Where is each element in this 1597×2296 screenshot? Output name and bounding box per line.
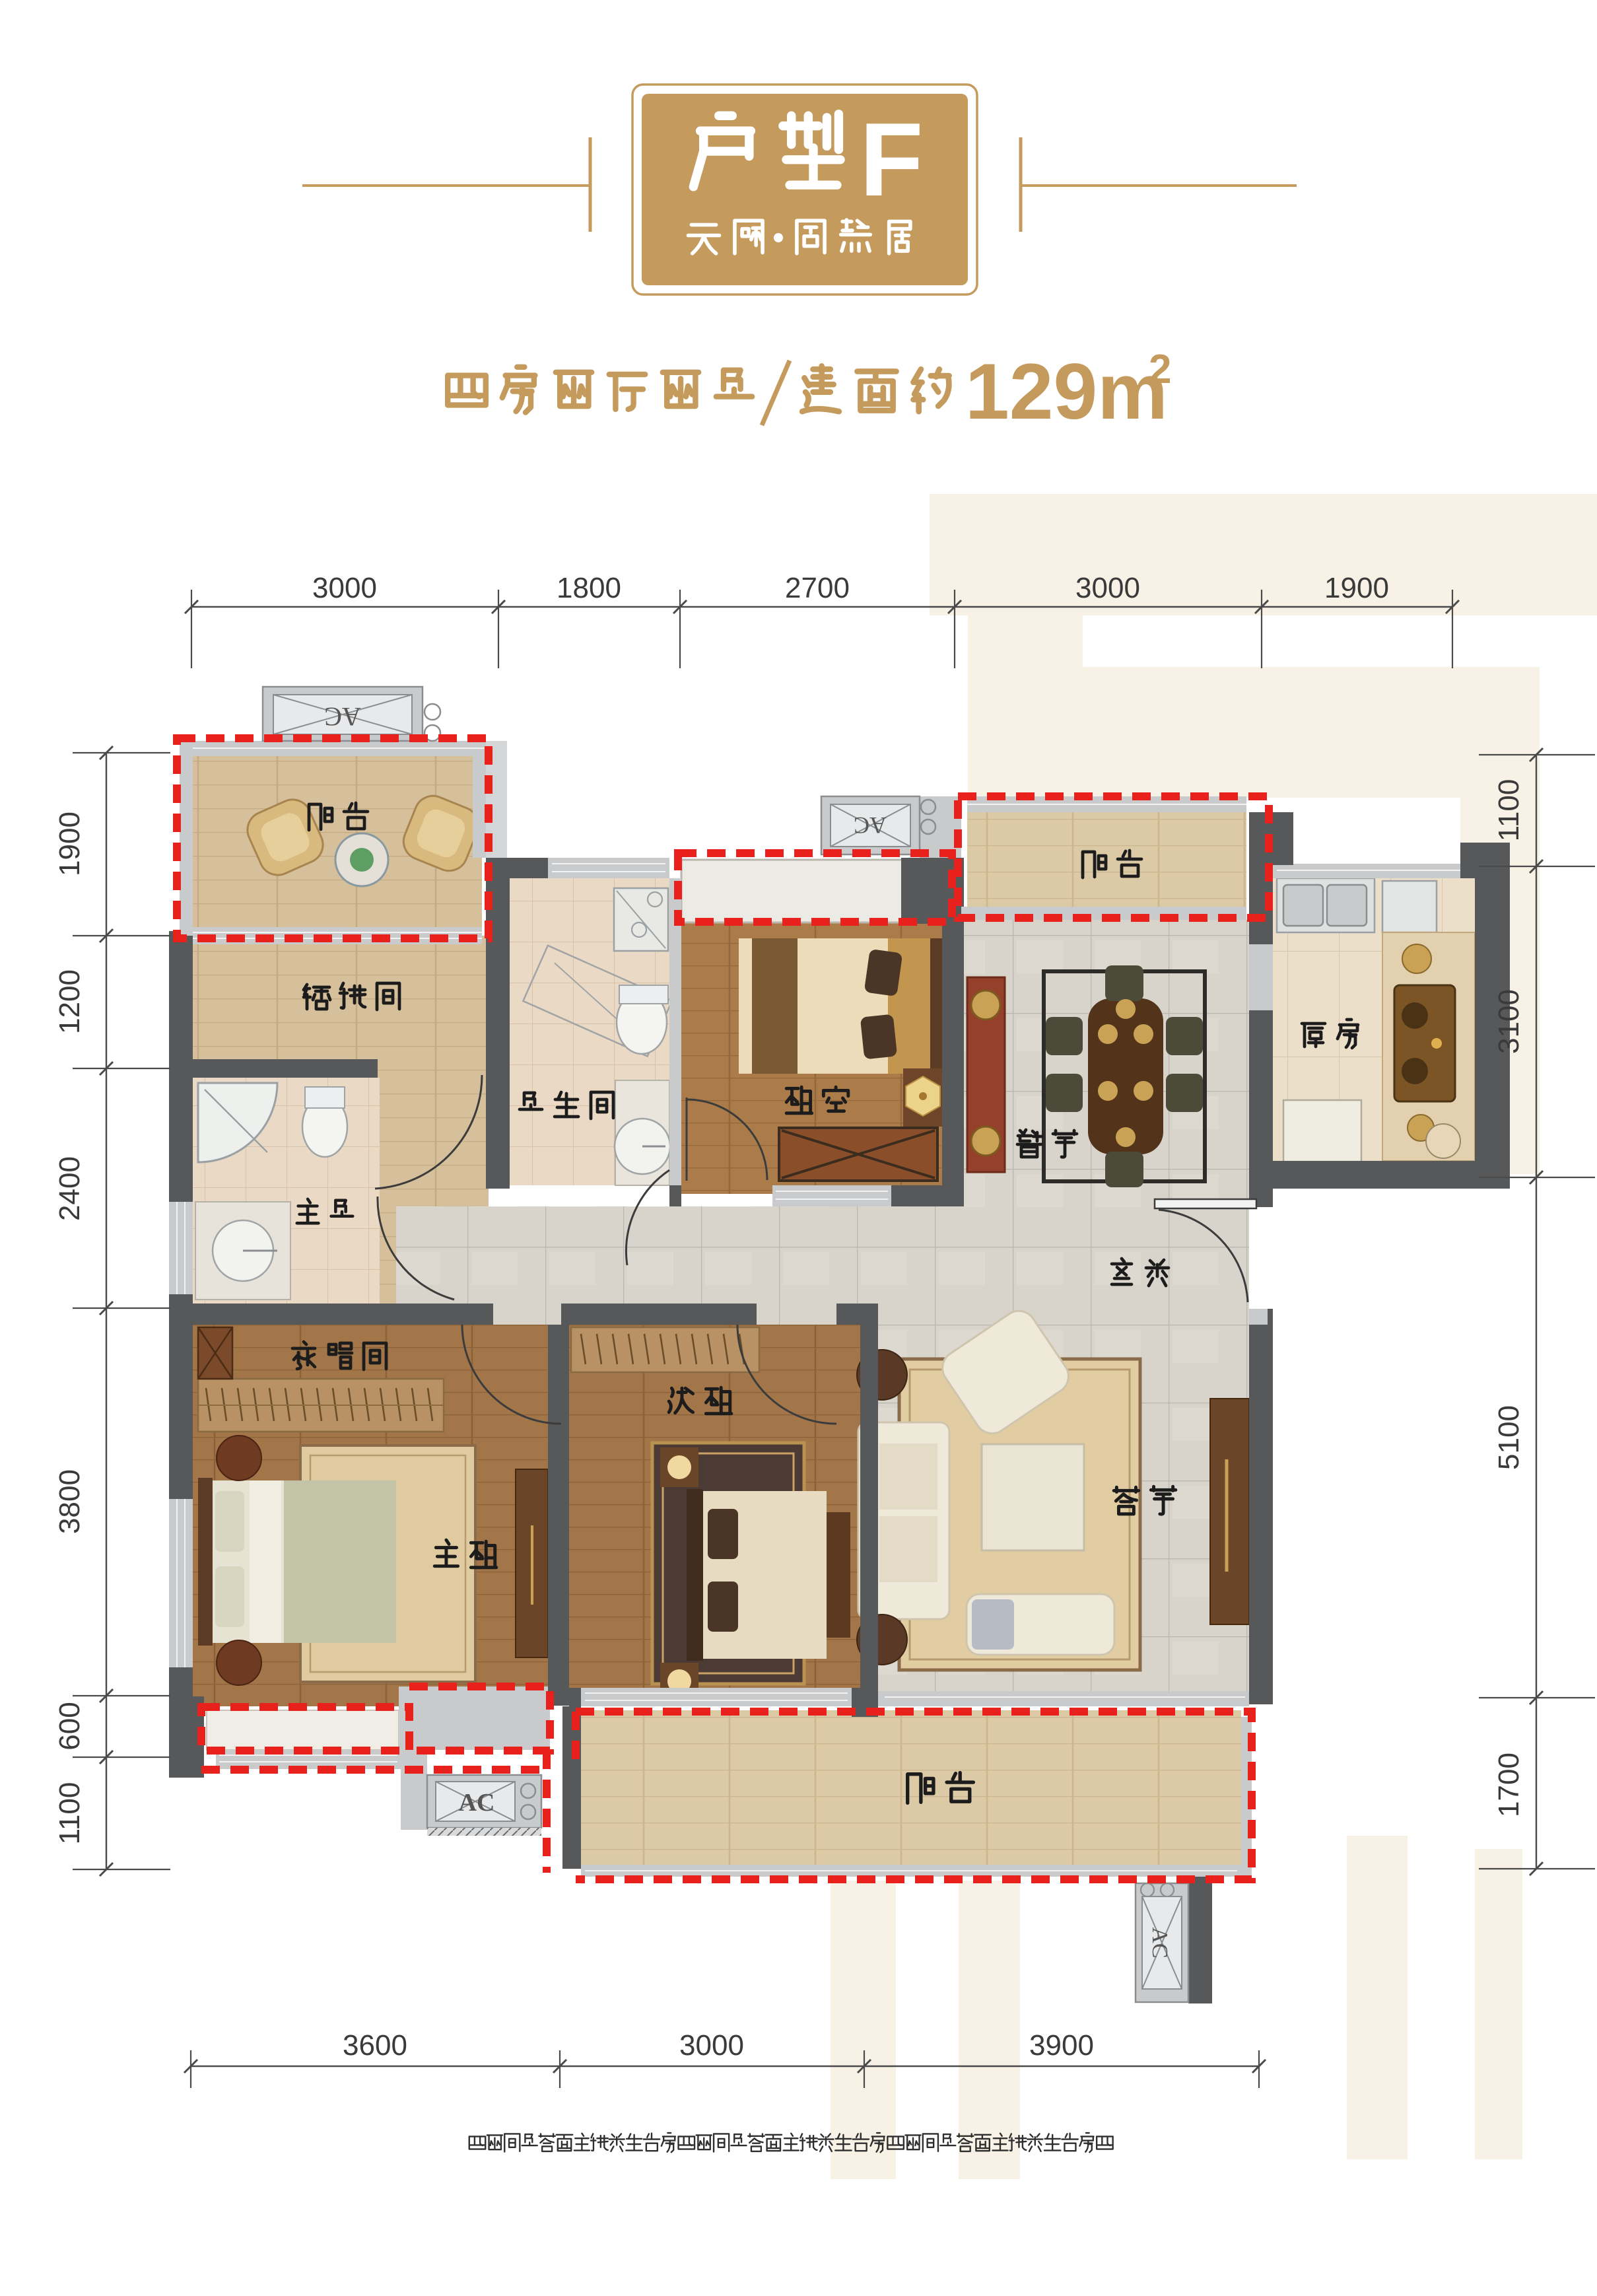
svg-text:F: F xyxy=(860,102,924,218)
svg-text:1900: 1900 xyxy=(53,812,86,876)
svg-text:1100: 1100 xyxy=(53,1782,86,1845)
svg-text:AC: AC xyxy=(324,702,361,732)
svg-text:3900: 3900 xyxy=(1029,2029,1094,2062)
svg-text:1800: 1800 xyxy=(557,572,621,604)
svg-text:5100: 5100 xyxy=(1493,1405,1525,1470)
svg-text:3600: 3600 xyxy=(343,2029,407,2062)
svg-text:AC: AC xyxy=(459,1789,495,1817)
svg-text:2: 2 xyxy=(1149,347,1171,392)
svg-text:AC: AC xyxy=(854,812,887,839)
svg-text:1700: 1700 xyxy=(1493,1753,1525,1817)
svg-text:3000: 3000 xyxy=(679,2029,744,2062)
svg-text:129m: 129m xyxy=(965,347,1168,436)
svg-text:3800: 3800 xyxy=(53,1469,86,1534)
svg-text:2400: 2400 xyxy=(53,1156,86,1221)
svg-text:1900: 1900 xyxy=(1324,572,1389,604)
svg-text:1100: 1100 xyxy=(1493,779,1525,842)
svg-text:1200: 1200 xyxy=(53,969,86,1034)
svg-text:3000: 3000 xyxy=(312,572,377,604)
svg-text:AC: AC xyxy=(1147,1927,1172,1958)
svg-text:2700: 2700 xyxy=(785,572,850,604)
svg-text:3000: 3000 xyxy=(1075,572,1140,604)
svg-text:3100: 3100 xyxy=(1493,989,1525,1054)
svg-text:600: 600 xyxy=(53,1702,86,1750)
